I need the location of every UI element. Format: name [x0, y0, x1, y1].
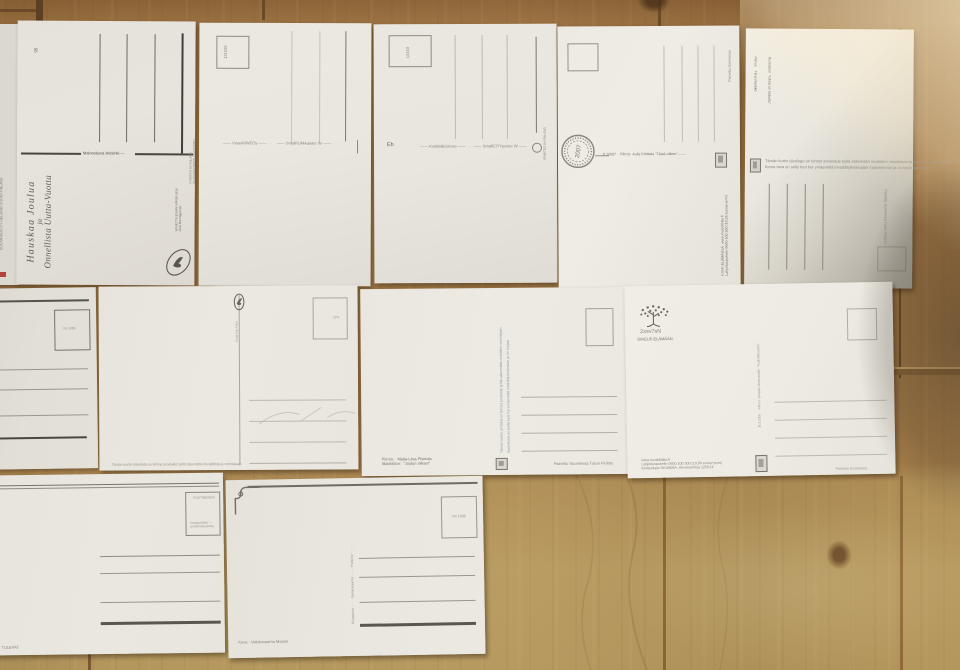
svg-text:2xsv7sN: 2xsv7sN	[640, 329, 661, 335]
svg-text:2007: 2007	[575, 144, 583, 159]
